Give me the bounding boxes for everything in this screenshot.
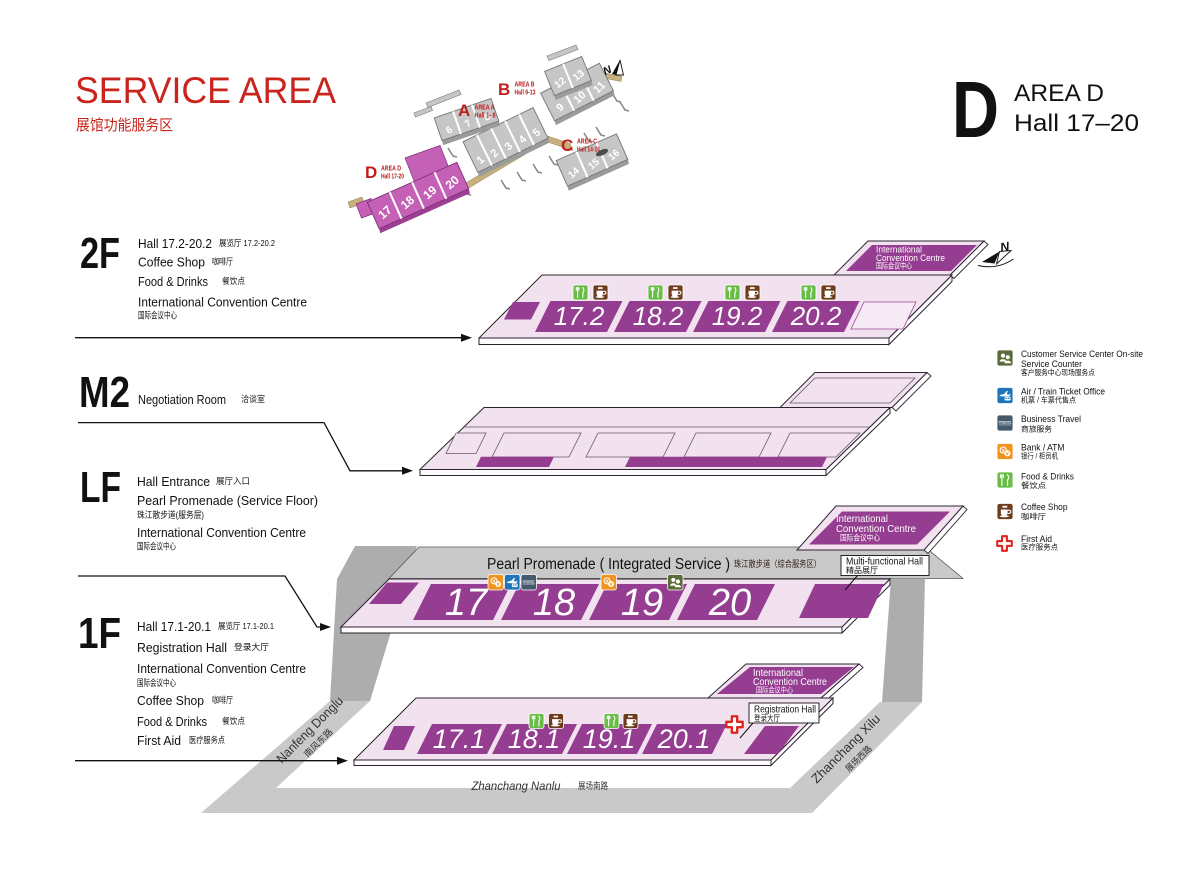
svg-text:Pearl Promenade (Service Floor: Pearl Promenade (Service Floor) <box>137 493 318 508</box>
svg-text:SERVICE AREA: SERVICE AREA <box>75 69 336 111</box>
svg-text:Food & Drinks: Food & Drinks <box>137 714 207 729</box>
svg-text:国际会议中心: 国际会议中心 <box>876 261 912 271</box>
svg-text:Hall 9-13: Hall 9-13 <box>515 88 536 97</box>
svg-text:TRAVEL: TRAVEL <box>522 580 535 584</box>
svg-text:M2: M2 <box>79 369 130 417</box>
svg-text:展馆功能服务区: 展馆功能服务区 <box>76 117 173 134</box>
svg-text:珠江散步道(服务层): 珠江散步道(服务层) <box>137 509 204 520</box>
svg-text:机票 / 车票代售点: 机票 / 车票代售点 <box>1021 395 1076 405</box>
svg-text:珠江散步道（综合服务区）: 珠江散步道（综合服务区） <box>734 558 821 569</box>
svg-text:国际会议中心: 国际会议中心 <box>137 541 176 552</box>
svg-text:International Convention Centr: International Convention Centre <box>137 661 306 676</box>
svg-text:18: 18 <box>533 582 575 624</box>
svg-text:B: B <box>498 80 510 99</box>
svg-text:20: 20 <box>708 582 751 624</box>
svg-text:咖啡厅: 咖啡厅 <box>1021 511 1047 521</box>
svg-text:C: C <box>561 136 573 155</box>
svg-text:国际会议中心: 国际会议中心 <box>138 310 177 321</box>
svg-text:LF: LF <box>80 464 121 512</box>
svg-text:Hall 17-20: Hall 17-20 <box>381 172 404 181</box>
svg-text:Hall 17–20: Hall 17–20 <box>1014 110 1139 137</box>
svg-text:Business Travel: Business Travel <box>1021 414 1081 424</box>
svg-text:19: 19 <box>621 582 663 624</box>
svg-text:AREA D: AREA D <box>1014 80 1104 107</box>
svg-text:银行 / 柜员机: 银行 / 柜员机 <box>1021 451 1058 461</box>
svg-text:Hall 14-16: Hall 14-16 <box>577 145 600 154</box>
svg-text:展厅入口: 展厅入口 <box>216 476 250 486</box>
svg-text:Food & Drinks: Food & Drinks <box>138 274 208 289</box>
svg-text:1F: 1F <box>78 610 121 658</box>
svg-text:咖啡厅: 咖啡厅 <box>212 257 233 267</box>
svg-text:餐饮点: 餐饮点 <box>222 276 245 286</box>
svg-text:餐饮点: 餐饮点 <box>222 716 245 726</box>
svg-text:20.1: 20.1 <box>657 724 711 754</box>
svg-text:19.2: 19.2 <box>712 301 763 331</box>
svg-text:精品展厅: 精品展厅 <box>846 565 878 575</box>
svg-text:餐饮点: 餐饮点 <box>1021 480 1047 490</box>
svg-text:展览厅 17.1-20.1: 展览厅 17.1-20.1 <box>218 621 274 631</box>
svg-text:Pearl Promenade ( Integrated S: Pearl Promenade ( Integrated Service ) <box>487 556 730 573</box>
svg-text:咖啡厅: 咖啡厅 <box>212 695 233 705</box>
svg-text:Zhanchang Nanlu: Zhanchang Nanlu <box>471 779 561 793</box>
svg-text:Food & Drinks: Food & Drinks <box>1021 472 1074 482</box>
svg-text:Coffee Shop: Coffee Shop <box>137 693 204 708</box>
svg-text:TRAVEL: TRAVEL <box>998 421 1012 425</box>
svg-text:Hall 17.2-20.2: Hall 17.2-20.2 <box>138 236 212 251</box>
svg-text:Hall 1- 8: Hall 1- 8 <box>475 111 496 120</box>
svg-text:20.2: 20.2 <box>790 301 842 331</box>
svg-text:洽谈室: 洽谈室 <box>241 394 265 404</box>
svg-text:登录大厅: 登录大厅 <box>754 713 780 723</box>
svg-text:登录大厅: 登录大厅 <box>234 642 269 652</box>
svg-text:International Convention Centr: International Convention Centre <box>137 525 306 540</box>
svg-text:2F: 2F <box>80 230 120 278</box>
svg-text:Coffee Shop: Coffee Shop <box>1021 502 1068 512</box>
svg-text:Hall Entrance: Hall Entrance <box>137 474 210 489</box>
svg-text:17: 17 <box>445 582 489 624</box>
svg-text:Registration Hall: Registration Hall <box>137 640 227 655</box>
svg-text:展场南路: 展场南路 <box>578 780 608 791</box>
svg-text:医疗服务点: 医疗服务点 <box>189 735 225 745</box>
svg-text:18.2: 18.2 <box>633 301 684 331</box>
svg-text:商旅服务: 商旅服务 <box>1021 424 1053 434</box>
svg-text:Coffee Shop: Coffee Shop <box>138 255 205 270</box>
svg-text:A: A <box>458 101 470 120</box>
svg-text:国际会议中心: 国际会议中心 <box>137 677 176 688</box>
svg-text:医疗服务点: 医疗服务点 <box>1021 542 1058 552</box>
svg-text:D: D <box>365 163 377 182</box>
svg-text:国际会议中心: 国际会议中心 <box>756 685 793 695</box>
svg-text:First Aid: First Aid <box>137 733 181 748</box>
svg-text:展览厅 17.2-20.2: 展览厅 17.2-20.2 <box>219 238 275 248</box>
svg-text:D: D <box>952 65 999 154</box>
svg-text:Customer Service Center On-sit: Customer Service Center On-site <box>1021 349 1143 359</box>
svg-text:国际会议中心: 国际会议中心 <box>840 533 880 543</box>
svg-text:Hall 17.1-20.1: Hall 17.1-20.1 <box>137 619 211 634</box>
svg-text:17.2: 17.2 <box>554 301 605 331</box>
svg-text:17.1: 17.1 <box>433 724 486 754</box>
svg-text:客户服务中心现场服务点: 客户服务中心现场服务点 <box>1021 367 1095 377</box>
svg-text:Negotiation Room: Negotiation Room <box>138 392 226 407</box>
svg-text:International Convention Centr: International Convention Centre <box>138 295 307 310</box>
